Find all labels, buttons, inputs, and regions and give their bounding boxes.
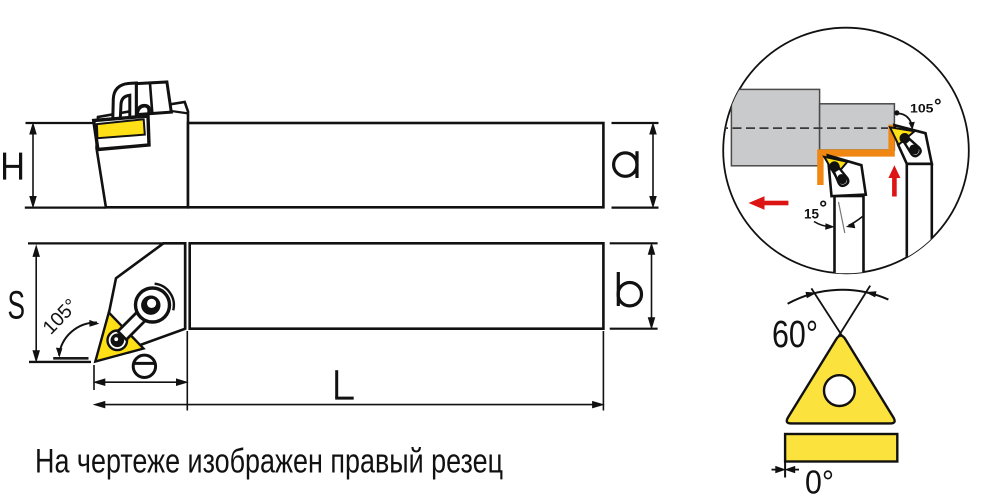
- svg-text:S: S: [8, 284, 26, 328]
- svg-text:105: 105: [910, 102, 934, 116]
- svg-text:0°: 0°: [805, 464, 834, 500]
- svg-text:15: 15: [804, 206, 819, 221]
- svg-text:60°: 60°: [772, 314, 818, 356]
- svg-text:105°: 105°: [38, 295, 82, 339]
- svg-text:На чертеже изображен правый ре: На чертеже изображен правый резец: [35, 443, 503, 481]
